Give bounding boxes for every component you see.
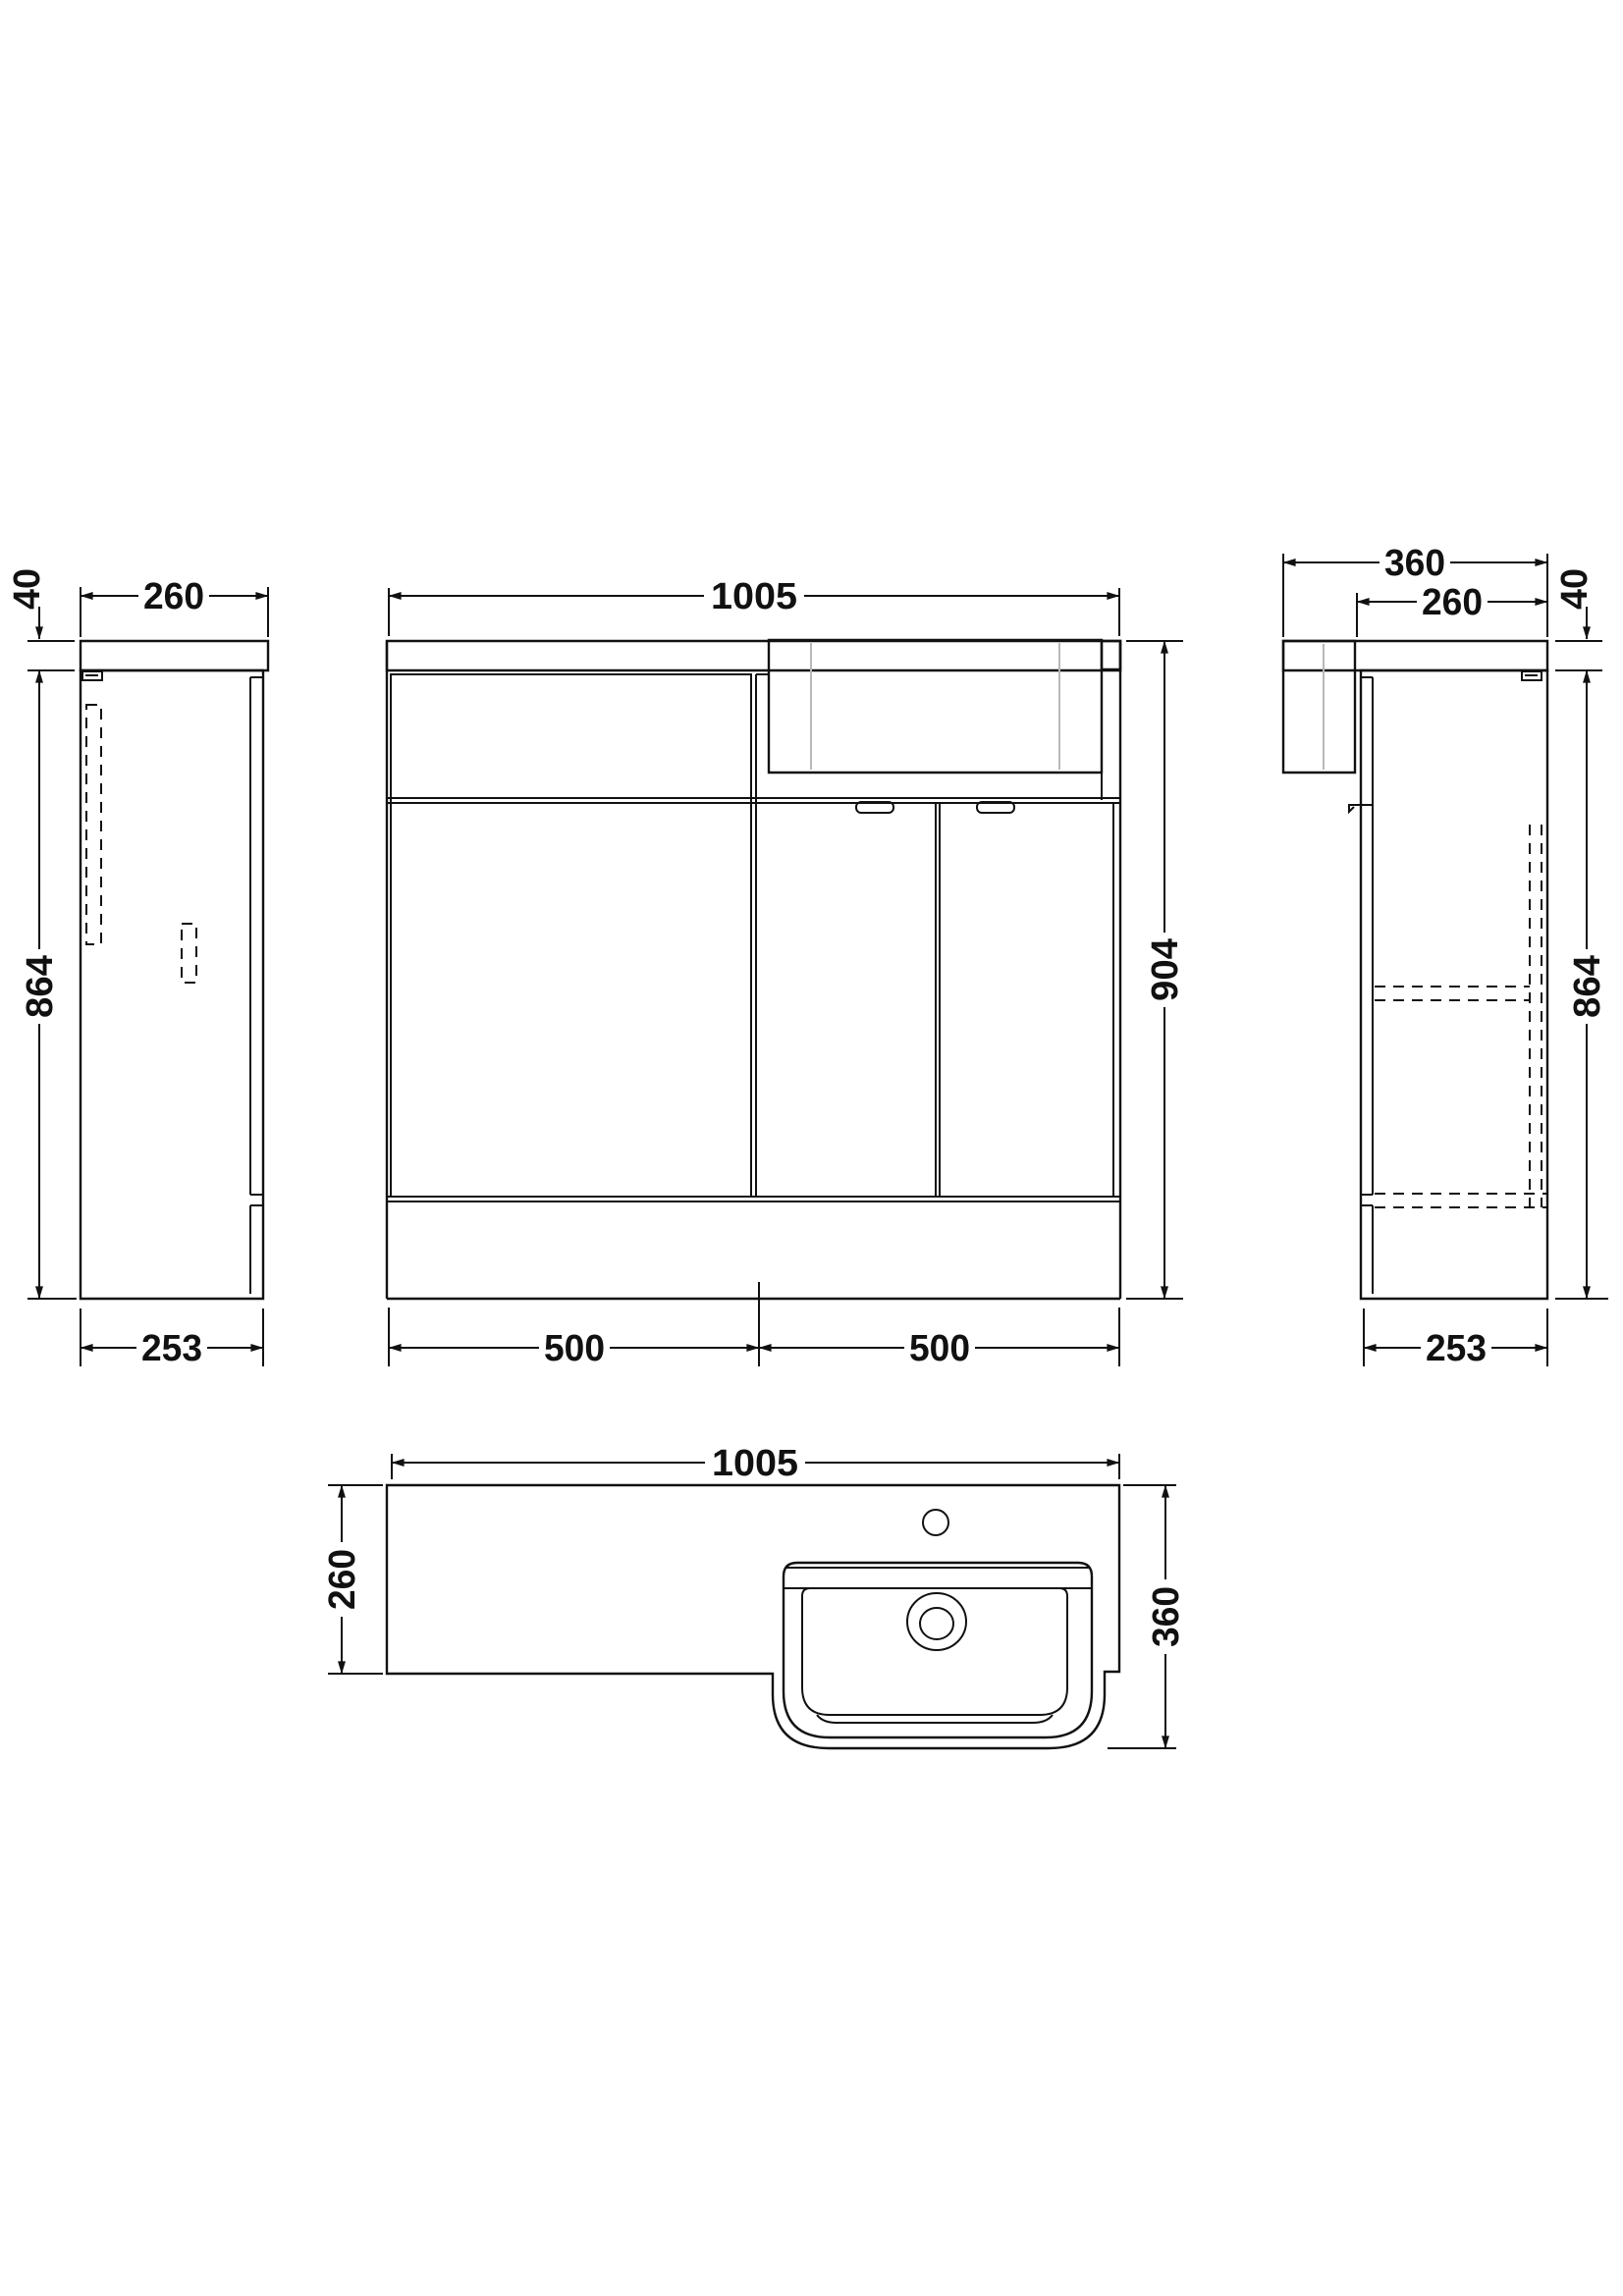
dim-left-thickness-40: 40 <box>7 568 75 670</box>
dim-label-360-plan: 360 <box>1146 1586 1187 1647</box>
plan-counter-outline <box>387 1485 1119 1748</box>
tap-hole <box>923 1510 948 1535</box>
left-view-cabinet-body <box>81 670 263 1299</box>
dim-label-1005-plan: 1005 <box>712 1443 798 1484</box>
dim-label-253-right: 253 <box>1426 1328 1487 1369</box>
plan-view: 1005 260 360 <box>322 1443 1187 1748</box>
technical-drawing-page: 260 40 864 253 <box>0 0 1623 2296</box>
right-view-cabinet-body <box>1361 670 1547 1299</box>
front-upper-panel <box>391 674 751 798</box>
left-view-countertop <box>81 641 268 670</box>
dim-right-height-864: 864 <box>1555 670 1608 1299</box>
dim-plan-depth-260: 260 <box>322 1485 383 1674</box>
counter-end-cap <box>1102 641 1120 669</box>
basin-overhang-side <box>1283 641 1355 773</box>
front-countertop <box>387 641 1120 670</box>
basin-apron <box>769 640 1102 773</box>
left-side-view: 260 40 864 253 <box>7 568 268 1369</box>
dim-label-864-right: 864 <box>1567 955 1608 1018</box>
drawing-canvas: 260 40 864 253 <box>0 0 1623 2296</box>
front-view: 1005 904 500 500 <box>387 576 1186 1369</box>
dim-right-counter-260: 260 <box>1357 582 1547 637</box>
wall-bracket-detail-right <box>1522 671 1542 680</box>
dim-label-500-right: 500 <box>909 1328 970 1369</box>
dim-label-40-right: 40 <box>1554 568 1596 610</box>
dim-label-40: 40 <box>7 568 48 610</box>
dim-label-1005: 1005 <box>711 576 797 617</box>
dim-label-260: 260 <box>143 576 204 617</box>
dim-left-base-253: 253 <box>81 1308 263 1369</box>
dim-front-width-1005: 1005 <box>389 576 1119 636</box>
hidden-fixing-dashed <box>182 924 196 983</box>
dim-front-500-right: 500 <box>759 1308 1119 1369</box>
dim-front-height-904: 904 <box>1126 641 1186 1299</box>
dim-label-260-right: 260 <box>1422 582 1483 623</box>
dim-right-base-253: 253 <box>1364 1308 1547 1369</box>
wall-bracket-detail <box>82 671 102 680</box>
waste-drain-outer <box>907 1593 966 1650</box>
hidden-back-bracket-dashed <box>86 705 101 944</box>
dim-plan-width-1005: 1005 <box>392 1443 1119 1484</box>
basin-bowl-front-line <box>817 1715 1053 1723</box>
dim-left-height-864: 864 <box>20 670 77 1299</box>
dim-left-depth-260: 260 <box>81 576 268 637</box>
dim-label-864: 864 <box>20 955 61 1018</box>
dim-front-500-left: 500 <box>389 1282 759 1369</box>
dim-right-thickness-40: 40 <box>1554 568 1602 670</box>
dim-label-260-plan: 260 <box>322 1549 363 1610</box>
dim-label-360: 360 <box>1384 543 1445 584</box>
waste-drain-inner <box>920 1608 953 1639</box>
dim-label-253: 253 <box>141 1328 202 1369</box>
dim-label-904: 904 <box>1145 938 1186 1001</box>
right-side-view: 360 260 40 864 253 <box>1283 543 1608 1369</box>
dim-label-500-left: 500 <box>544 1328 605 1369</box>
dim-right-depth-360: 360 <box>1283 543 1547 637</box>
